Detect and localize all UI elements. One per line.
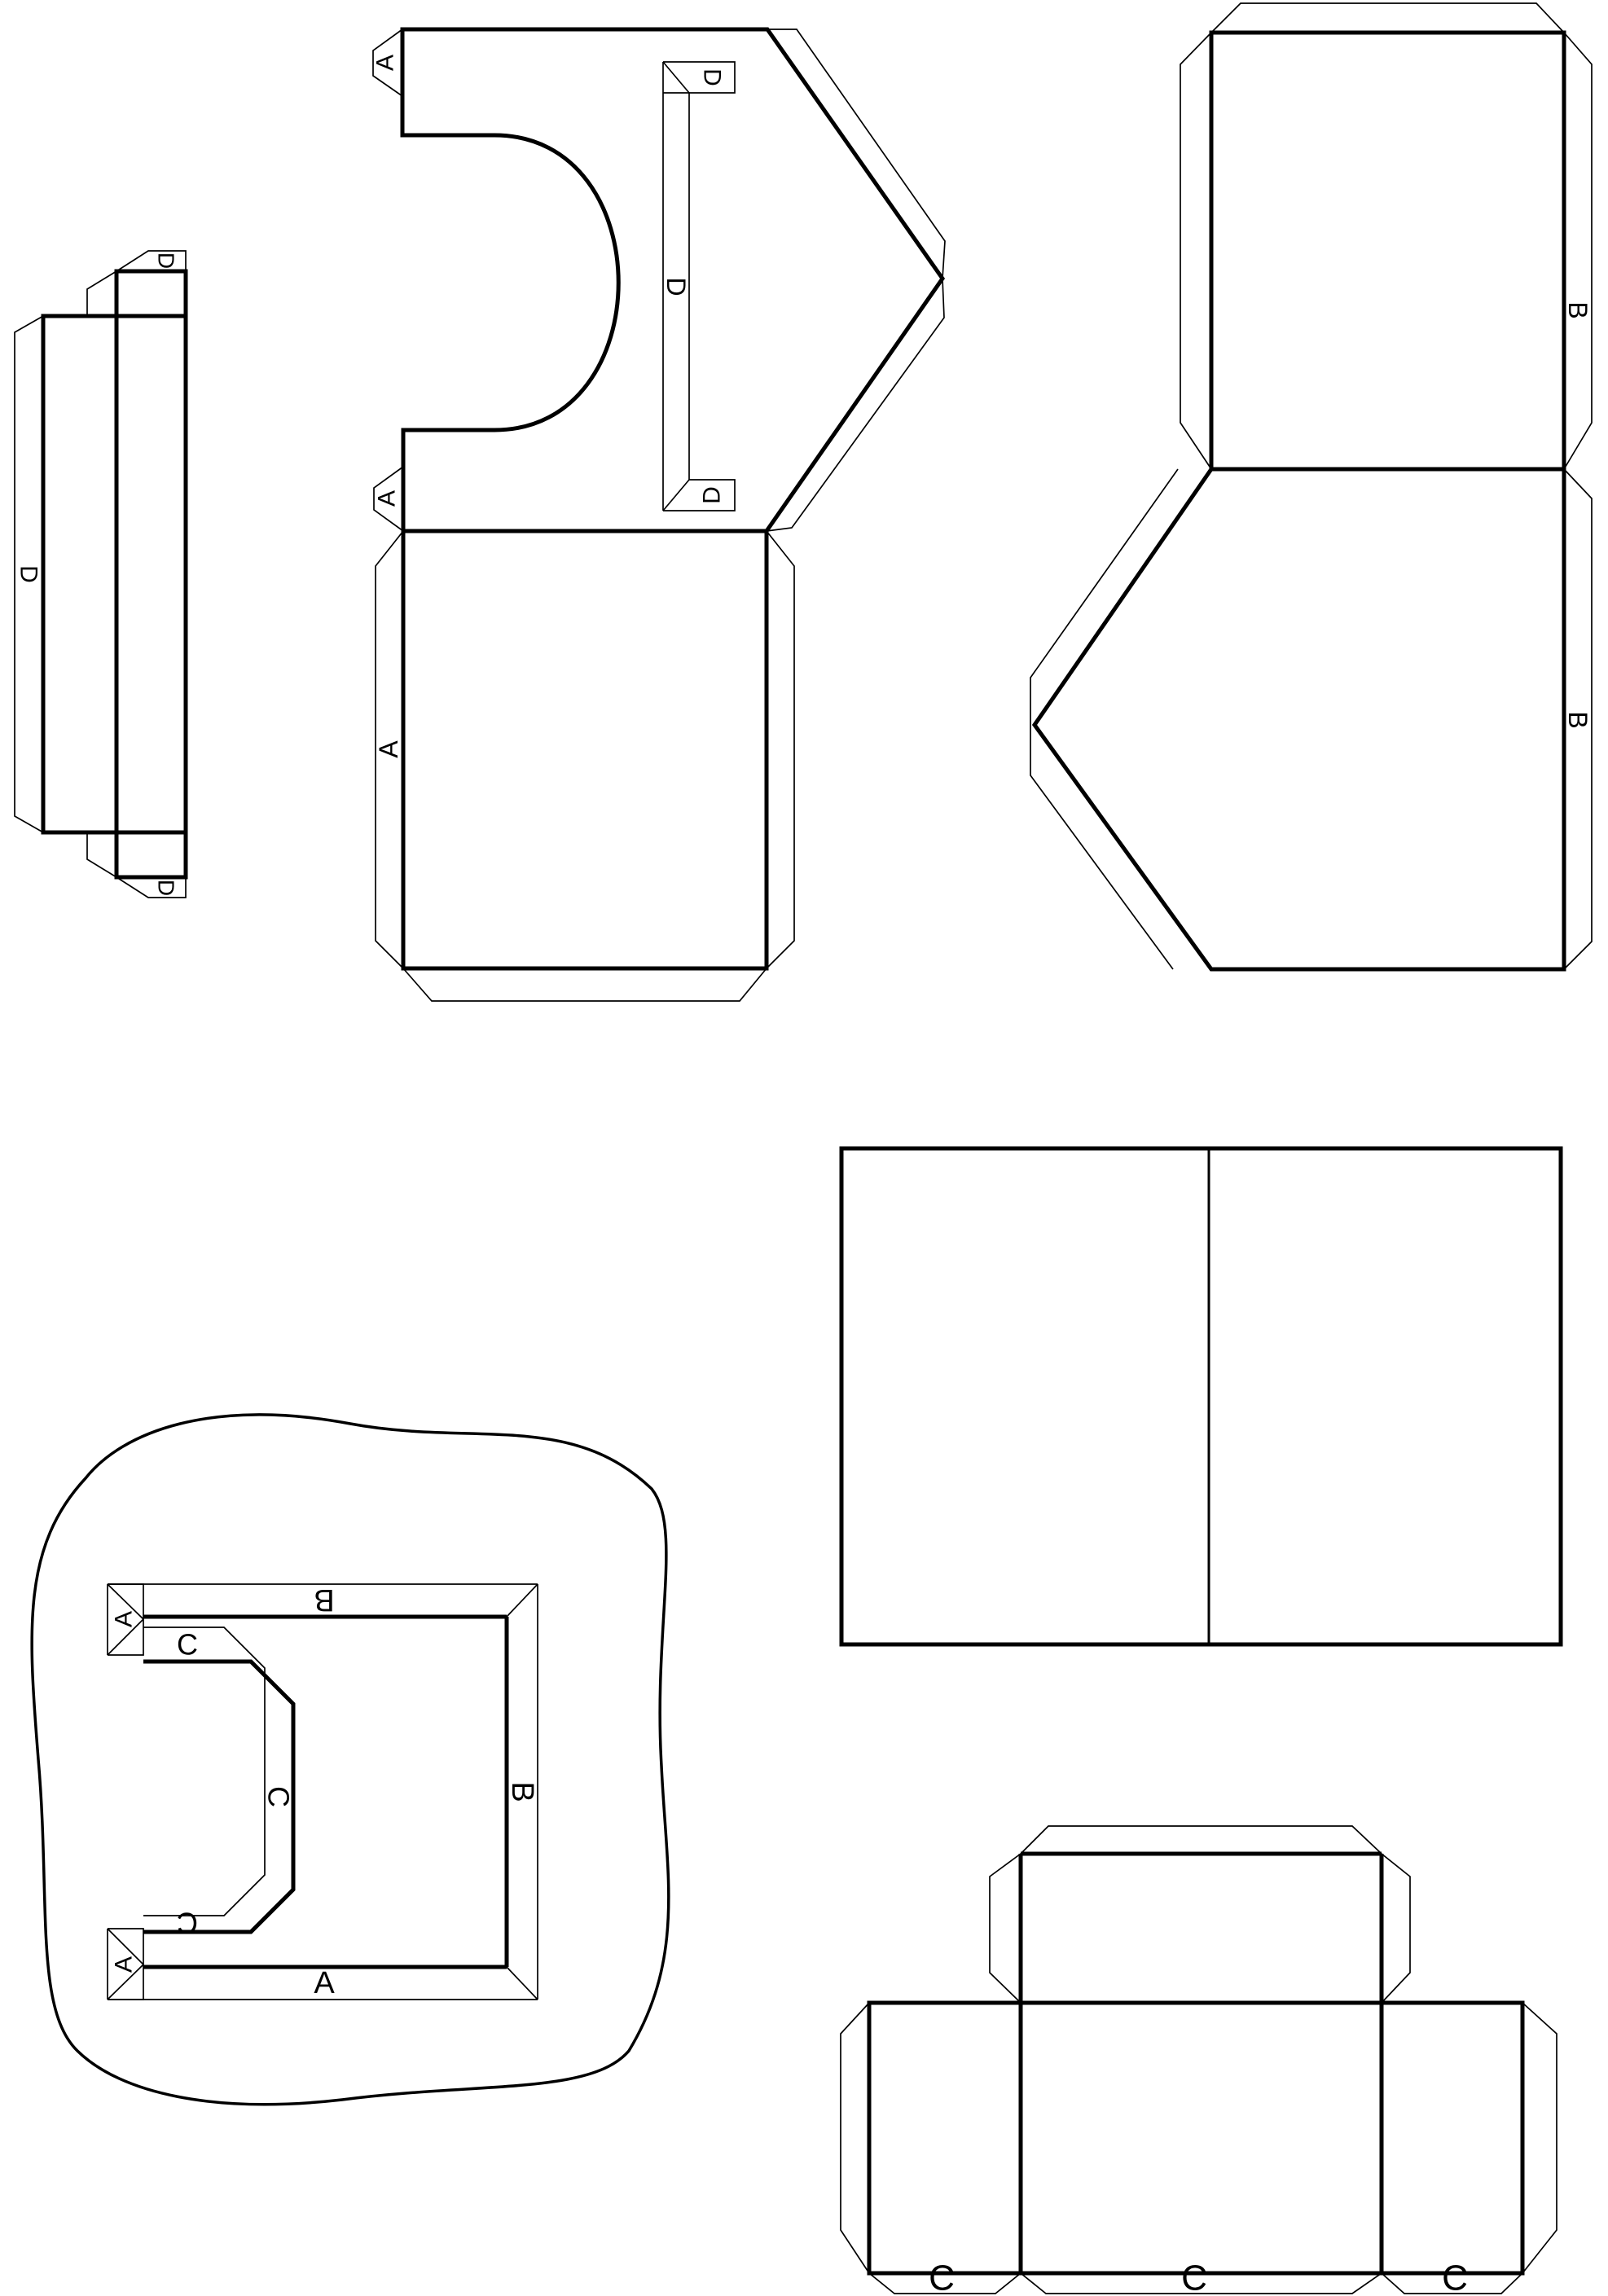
piece-tray-strip: CCC bbox=[841, 1826, 1557, 2296]
curved-corner-panel-door-panel-line bbox=[403, 531, 767, 968]
tray-strip-row-outline-line bbox=[869, 2003, 1522, 2273]
roof-box-pentagon-tab-lower-line bbox=[1030, 725, 1173, 969]
curved-corner-panel-glue-label: D bbox=[699, 486, 726, 504]
spine-wrap-strip-glue-label: D bbox=[154, 252, 179, 269]
cover-panel-outline-line bbox=[841, 1148, 1561, 1644]
blob-frame-miter-top-right-line bbox=[507, 1584, 538, 1617]
blob-frame-miter-bottom-right-line bbox=[507, 1967, 538, 2000]
spine-wrap-strip-glue-label: D bbox=[15, 565, 42, 583]
curved-corner-panel-door-flap-bottom-line bbox=[403, 968, 767, 1001]
blob-frame-glue-label: C bbox=[262, 1786, 296, 1807]
spine-wrap-strip-glue-label: D bbox=[154, 880, 179, 896]
blob-frame-glue-label: C bbox=[177, 1907, 198, 1940]
blob-frame-blob-outline-line bbox=[32, 1415, 669, 2105]
piece-cover-panel bbox=[841, 1148, 1561, 1644]
roof-box-pentagon-panel-line bbox=[1035, 469, 1564, 969]
tray-strip-lid-flap-right-line bbox=[1382, 1854, 1410, 2003]
spine-wrap-strip-small-flap-top-line bbox=[87, 271, 116, 316]
tray-strip-glue-label: C bbox=[1442, 2259, 1468, 2296]
roof-box-glue-label: B bbox=[1563, 711, 1593, 728]
curved-corner-panel-glue-label: A bbox=[374, 490, 401, 507]
piece-blob-frame: AABBACCC bbox=[32, 1415, 669, 2105]
blob-frame-cstrip-outer-line bbox=[143, 1627, 265, 1916]
roof-box-top-panel-line bbox=[1211, 33, 1564, 469]
curved-corner-panel-slot-box-bottom-diag-line bbox=[663, 480, 689, 511]
papercraft-sheet: DDDAAADDDBBAABBACCCCCC bbox=[0, 0, 1608, 2296]
curved-corner-panel-glue-label: A bbox=[372, 55, 399, 71]
roof-box-flap-left-line bbox=[1180, 33, 1211, 469]
tray-strip-lid-flap-left-line bbox=[990, 1854, 1021, 2003]
spine-wrap-strip-small-flap-bottom-line bbox=[87, 832, 116, 877]
curved-corner-panel-door-flap-right-line bbox=[767, 531, 794, 968]
roof-box-pentagon-tab-upper-line bbox=[1030, 469, 1178, 725]
piece-spine-wrap-strip: DDD bbox=[15, 251, 186, 898]
blob-frame-glue-label: A bbox=[111, 1956, 138, 1973]
curved-corner-panel-glue-label: D bbox=[699, 68, 726, 86]
blob-frame-glue-label: B bbox=[505, 1781, 539, 1802]
blob-frame-glue-label: A bbox=[111, 1611, 138, 1627]
tray-strip-glue-label: C bbox=[1181, 2259, 1207, 2296]
curved-corner-panel-slot-box-top-diag-line bbox=[663, 62, 689, 93]
tray-strip-glue-label: C bbox=[929, 2259, 955, 2296]
roof-box-flap-top-line bbox=[1211, 3, 1564, 33]
tray-strip-row-flap-right-line bbox=[1522, 2003, 1557, 2273]
spine-wrap-strip-side-column-line bbox=[116, 271, 186, 877]
blob-frame-glue-label: C bbox=[177, 1628, 198, 1662]
blob-frame-glue-label: A bbox=[314, 1966, 335, 2000]
roof-box-flap-right-line bbox=[1564, 33, 1592, 469]
roof-box-glue-label: B bbox=[1563, 301, 1593, 318]
tray-strip-lid-flap-top-line bbox=[1021, 1826, 1382, 1854]
spine-wrap-strip-main-panel-line bbox=[43, 316, 116, 832]
piece-curved-corner-panel: AAADDD bbox=[372, 29, 946, 1001]
curved-corner-panel-glue-label: A bbox=[374, 740, 403, 758]
piece-roof-box: BB bbox=[1030, 3, 1593, 969]
blob-frame-glue-label: B bbox=[314, 1583, 334, 1617]
tray-strip-row-flap-left-line bbox=[841, 2003, 869, 2273]
curved-corner-panel-glue-label: D bbox=[661, 277, 691, 296]
